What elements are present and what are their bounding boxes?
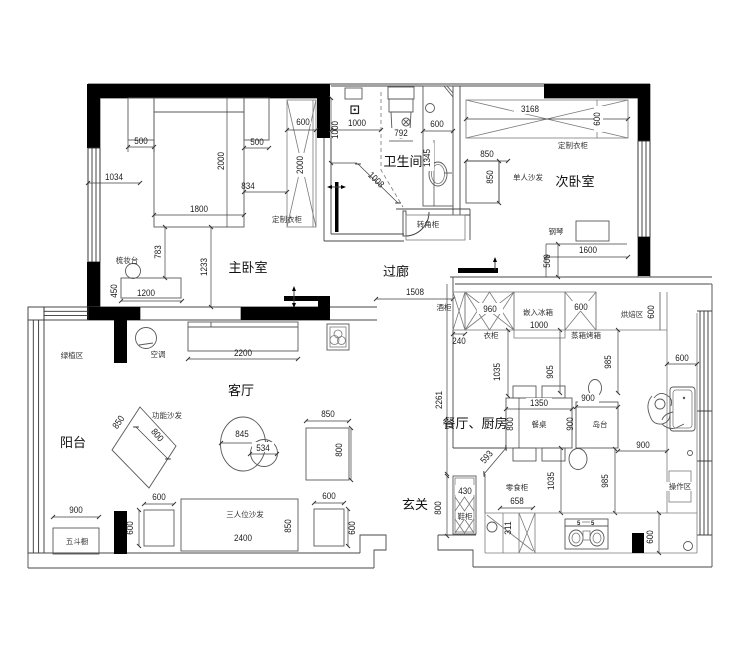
svg-text:1233: 1233	[199, 258, 210, 276]
svg-text:酒柜: 酒柜	[437, 302, 452, 312]
svg-text:600: 600	[430, 119, 444, 130]
svg-text:800: 800	[505, 417, 516, 431]
svg-text:600: 600	[125, 521, 136, 535]
svg-text:500: 500	[134, 136, 148, 147]
svg-text:1000: 1000	[530, 320, 548, 331]
svg-text:800: 800	[433, 501, 444, 515]
svg-text:960: 960	[483, 304, 497, 315]
svg-text:1800: 1800	[190, 204, 208, 215]
svg-text:功能沙发: 功能沙发	[152, 410, 182, 420]
svg-text:1200: 1200	[137, 288, 155, 299]
svg-text:1035: 1035	[492, 363, 503, 381]
svg-text:600: 600	[646, 305, 657, 319]
svg-text:主卧室: 主卧室	[228, 260, 267, 275]
svg-text:单人沙发: 单人沙发	[513, 172, 543, 182]
svg-text:转角柜: 转角柜	[417, 219, 440, 229]
svg-text:500: 500	[250, 137, 264, 148]
svg-text:600: 600	[645, 530, 656, 544]
svg-text:900: 900	[581, 393, 595, 404]
svg-text:905: 905	[545, 365, 556, 379]
svg-text:零食柜: 零食柜	[506, 482, 529, 492]
svg-text:985: 985	[603, 355, 614, 369]
svg-text:1035: 1035	[546, 472, 557, 490]
svg-text:衣柜: 衣柜	[484, 330, 499, 340]
svg-text:2000: 2000	[295, 156, 306, 174]
svg-text:1508: 1508	[406, 287, 424, 298]
svg-text:岛台: 岛台	[593, 419, 608, 429]
svg-text:五斗橱: 五斗橱	[66, 536, 89, 546]
svg-text:鞋柜: 鞋柜	[458, 511, 473, 521]
svg-text:定制衣柜: 定制衣柜	[558, 140, 588, 150]
svg-text:1350: 1350	[530, 398, 548, 409]
svg-text:次卧室: 次卧室	[555, 174, 594, 189]
svg-text:2400: 2400	[234, 533, 252, 544]
svg-text:钢琴: 钢琴	[549, 226, 564, 236]
svg-text:600: 600	[152, 492, 166, 503]
svg-text:客厅: 客厅	[228, 383, 254, 398]
svg-text:534: 534	[256, 443, 270, 454]
svg-text:空调: 空调	[151, 349, 166, 359]
svg-text:900: 900	[565, 417, 576, 431]
svg-text:600: 600	[322, 491, 336, 502]
svg-text:卫生间: 卫生间	[383, 154, 422, 169]
svg-text:600: 600	[347, 521, 358, 535]
svg-text:792: 792	[394, 128, 408, 139]
svg-text:311: 311	[503, 521, 514, 535]
svg-text:900: 900	[69, 505, 83, 516]
svg-text:2000: 2000	[216, 152, 227, 170]
svg-text:985: 985	[600, 474, 611, 488]
svg-text:900: 900	[636, 440, 650, 451]
svg-text:783: 783	[153, 245, 164, 259]
svg-text:1345: 1345	[422, 149, 433, 167]
svg-text:834: 834	[241, 181, 255, 192]
svg-text:600: 600	[574, 302, 588, 313]
svg-text:绿植区: 绿植区	[61, 350, 84, 360]
svg-text:850: 850	[321, 409, 335, 420]
svg-text:餐桌: 餐桌	[532, 419, 547, 429]
svg-text:蒸箱烤箱: 蒸箱烤箱	[571, 330, 601, 340]
svg-text:850: 850	[480, 149, 494, 160]
svg-text:1600: 1600	[579, 245, 597, 256]
svg-text:烘焙区: 烘焙区	[621, 309, 644, 319]
svg-text:1000: 1000	[330, 121, 341, 139]
svg-text:阳台: 阳台	[60, 435, 86, 450]
svg-text:梳妆台: 梳妆台	[116, 255, 139, 265]
svg-text:450: 450	[109, 284, 120, 298]
svg-text:600: 600	[675, 353, 689, 364]
svg-text:600: 600	[296, 117, 310, 128]
svg-text:430: 430	[458, 486, 472, 497]
svg-text:600: 600	[592, 112, 603, 126]
svg-text:操作区: 操作区	[669, 481, 692, 491]
svg-text:3168: 3168	[521, 104, 539, 115]
svg-text:嵌入冰箱: 嵌入冰箱	[523, 307, 553, 317]
svg-text:玄关: 玄关	[402, 497, 428, 512]
svg-text:500: 500	[542, 254, 553, 268]
svg-text:过廊: 过廊	[383, 264, 409, 279]
svg-text:餐厅、厨房: 餐厅、厨房	[442, 416, 507, 431]
svg-text:2261: 2261	[434, 391, 445, 409]
svg-text:定制衣柜: 定制衣柜	[272, 214, 302, 224]
svg-text:1000: 1000	[348, 118, 366, 129]
svg-text:800: 800	[334, 443, 345, 457]
svg-text:850: 850	[283, 519, 294, 533]
svg-text:三人位沙发: 三人位沙发	[226, 509, 264, 519]
svg-text:1034: 1034	[105, 172, 123, 183]
svg-text:658: 658	[510, 496, 524, 507]
svg-text:845: 845	[235, 429, 249, 440]
svg-text:240: 240	[452, 336, 466, 347]
svg-text:850: 850	[485, 170, 496, 184]
svg-text:2200: 2200	[234, 348, 252, 359]
